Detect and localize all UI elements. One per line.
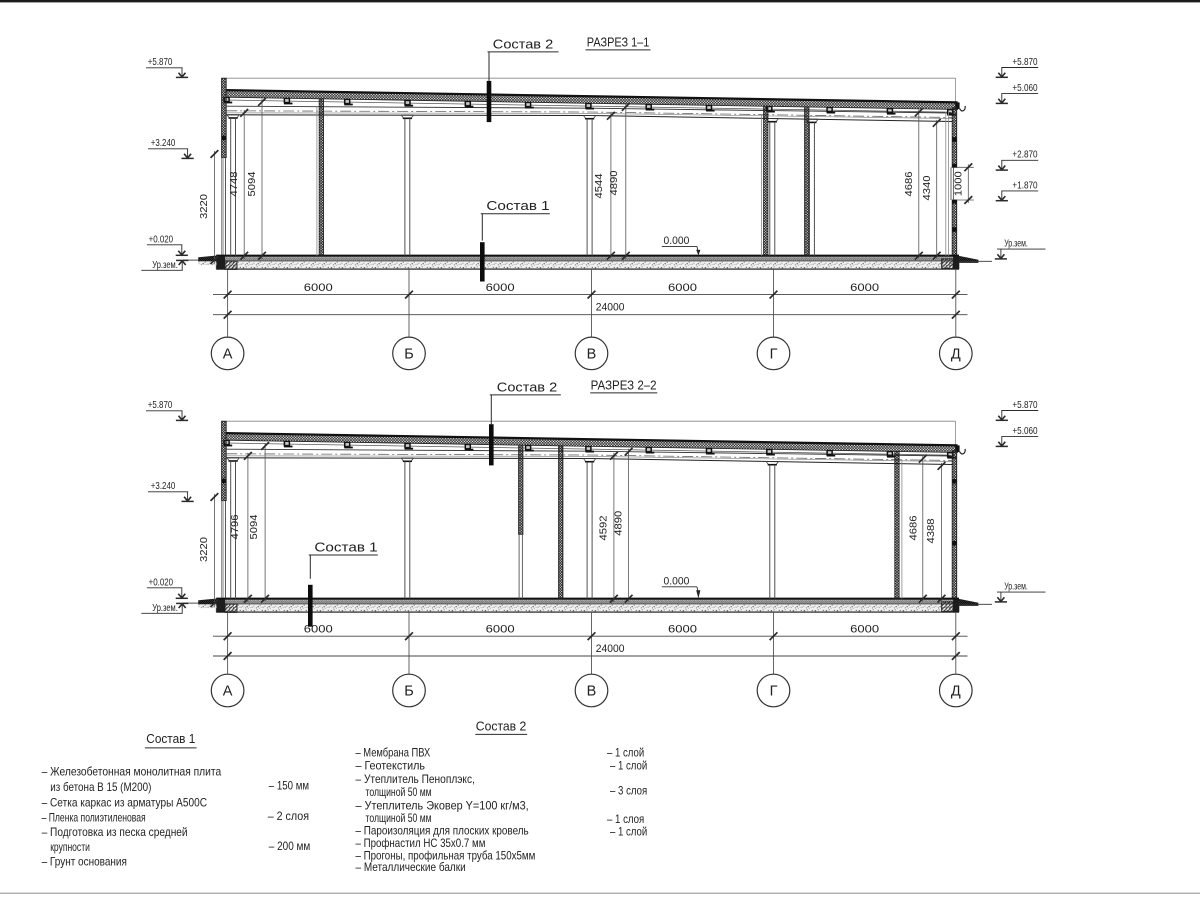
svg-text:– Пленка полиэтиленовая: – Пленка полиэтиленовая [42, 811, 146, 825]
svg-text:+5.870: +5.870 [1012, 399, 1037, 411]
svg-text:0.000: 0.000 [664, 235, 690, 247]
svg-text:– Сетка каркас из арматуры А5: – Сетка каркас из арматуры А500С [42, 796, 208, 810]
svg-text:РАЗРЕЗ 1–1: РАЗРЕЗ 1–1 [587, 35, 650, 50]
svg-text:– 200 мм: – 200 мм [269, 839, 311, 853]
svg-text:6000: 6000 [486, 282, 515, 294]
svg-text:3220: 3220 [199, 537, 210, 562]
svg-text:В: В [587, 684, 597, 700]
svg-text:4686: 4686 [904, 171, 915, 196]
svg-text:4686: 4686 [908, 515, 919, 540]
svg-text:0.000: 0.000 [664, 575, 690, 587]
svg-text:4544: 4544 [594, 173, 605, 198]
svg-text:4890: 4890 [614, 510, 625, 535]
svg-text:1000: 1000 [953, 171, 964, 196]
svg-text:Ур.зем.: Ур.зем. [1004, 239, 1028, 250]
svg-text:Состав 2: Состав 2 [476, 719, 527, 733]
svg-text:Д: Д [951, 347, 961, 363]
svg-text:– 1 слой: – 1 слой [610, 825, 647, 839]
svg-text:– Железобетонная монолитная: – Железобетонная монолитная плита [42, 765, 222, 779]
svg-text:6000: 6000 [304, 282, 333, 294]
svg-text:+0.020: +0.020 [149, 576, 174, 588]
svg-text:В: В [587, 347, 597, 363]
svg-text:Ур.зем.: Ур.зем. [152, 260, 178, 271]
svg-text:Состав 2: Состав 2 [493, 37, 553, 51]
svg-text:5094: 5094 [247, 171, 258, 196]
svg-text:А: А [223, 684, 233, 700]
svg-text:+2.870: +2.870 [1012, 149, 1037, 161]
svg-text:24000: 24000 [596, 302, 625, 314]
svg-text:4592: 4592 [598, 515, 609, 540]
svg-text:4748: 4748 [229, 171, 240, 196]
svg-text:6000: 6000 [668, 623, 697, 635]
svg-text:+5.870: +5.870 [148, 399, 173, 411]
svg-text:6000: 6000 [668, 282, 697, 294]
svg-text:крупности: крупности [50, 840, 90, 854]
svg-text:4796: 4796 [230, 514, 241, 539]
svg-text:6000: 6000 [486, 623, 515, 635]
svg-text:+5.870: +5.870 [1012, 56, 1037, 68]
svg-text:– 2 слоя: – 2 слоя [268, 809, 309, 823]
svg-text:+0.020: +0.020 [149, 233, 174, 245]
svg-text:– Утеплитель Пеноплэкс,: – Утеплитель Пеноплэкс, [356, 772, 475, 786]
svg-text:5094: 5094 [249, 514, 260, 539]
svg-text:– Геотекстиль: – Геотекстиль [356, 758, 426, 772]
svg-text:Г: Г [770, 684, 778, 700]
svg-text:– 1 слой: – 1 слой [610, 758, 647, 772]
svg-text:А: А [223, 347, 233, 363]
svg-text:Д: Д [951, 684, 961, 700]
svg-text:Г: Г [770, 347, 778, 363]
svg-text:+3.240: +3.240 [151, 480, 176, 492]
svg-text:из бетона В 15 (М200): из бетона В 15 (М200) [50, 780, 151, 794]
svg-text:– Металлические балки: – Металлические балки [356, 860, 466, 874]
svg-text:– Подготовка из песка средней: – Подготовка из песка средней [42, 825, 188, 839]
svg-text:Состав 1: Состав 1 [314, 541, 377, 555]
svg-text:Состав 1: Состав 1 [486, 199, 549, 213]
svg-text:4890: 4890 [609, 170, 620, 195]
svg-text:3220: 3220 [199, 194, 210, 219]
svg-text:+5.870: +5.870 [148, 56, 173, 68]
svg-text:Ур.зем.: Ур.зем. [152, 603, 178, 614]
svg-text:+5.060: +5.060 [1012, 82, 1037, 94]
svg-text:+3.240: +3.240 [151, 137, 176, 149]
svg-text:Ур.зем.: Ур.зем. [1004, 582, 1028, 593]
svg-text:– Мембрана ПВХ: – Мембрана ПВХ [356, 745, 431, 759]
svg-text:6000: 6000 [850, 282, 879, 294]
svg-text:+1.870: +1.870 [1012, 179, 1037, 191]
svg-text:Б: Б [404, 347, 414, 363]
svg-text:– 150 мм: – 150 мм [269, 779, 309, 793]
svg-text:4340: 4340 [922, 175, 933, 200]
svg-text:24000: 24000 [596, 643, 625, 655]
svg-text:6000: 6000 [850, 623, 879, 635]
svg-text:толщиной 50 мм: толщиной 50 мм [366, 785, 432, 799]
svg-text:– 3 слоя: – 3 слоя [610, 783, 647, 797]
svg-text:+5.060: +5.060 [1012, 425, 1037, 437]
svg-text:4388: 4388 [926, 518, 937, 543]
svg-text:– Грунт основания: – Грунт основания [42, 854, 127, 868]
svg-text:Б: Б [404, 684, 414, 700]
svg-text:Состав 2: Состав 2 [497, 380, 557, 394]
svg-text:РАЗРЕЗ 2–2: РАЗРЕЗ 2–2 [591, 378, 657, 393]
svg-text:– 1 слой: – 1 слой [607, 745, 644, 759]
svg-text:Состав 1: Состав 1 [146, 732, 195, 746]
